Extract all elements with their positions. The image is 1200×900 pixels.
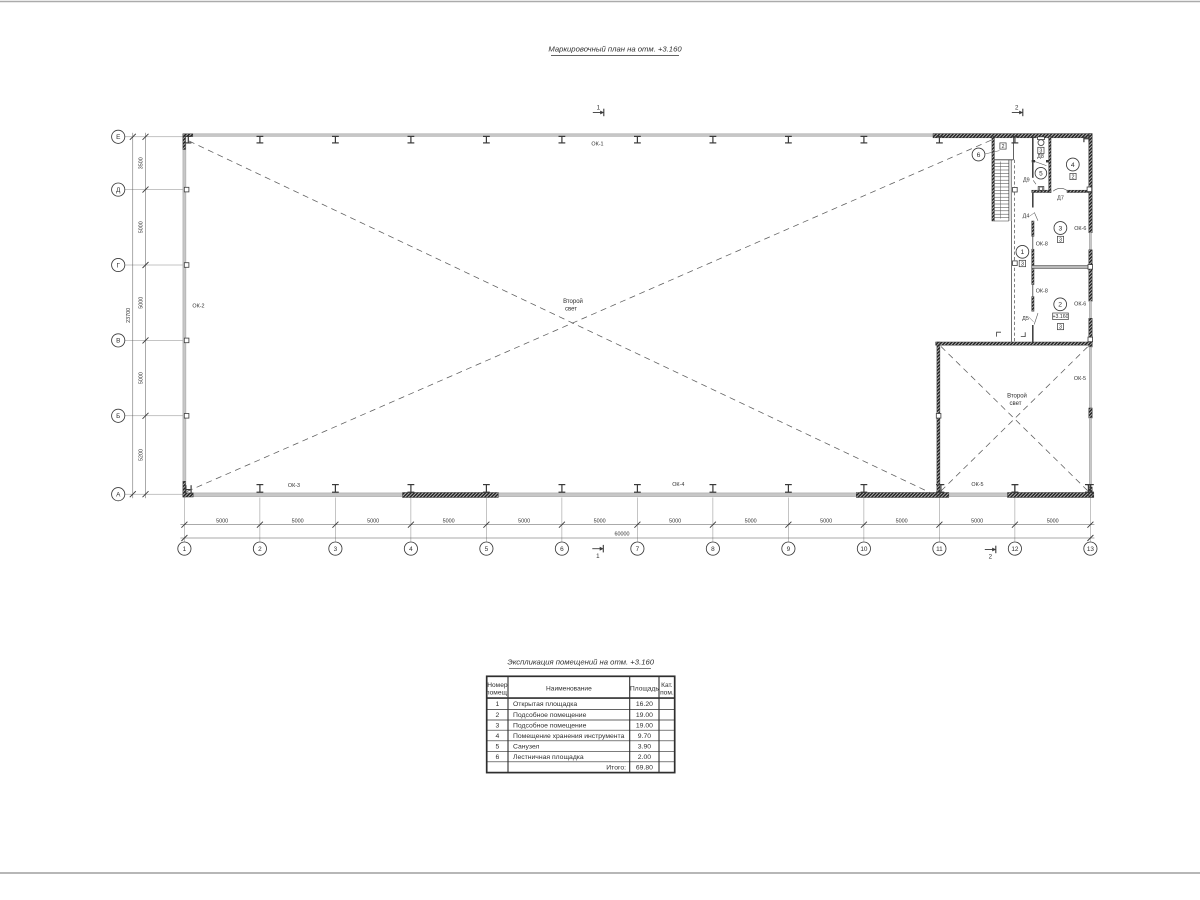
svg-text:9.70: 9.70 — [638, 733, 651, 740]
svg-text:Подсобное помещение: Подсобное помещение — [513, 722, 587, 730]
svg-text:5000: 5000 — [971, 518, 983, 524]
svg-text:свет: свет — [1009, 401, 1021, 407]
svg-text:5000: 5000 — [367, 518, 379, 524]
svg-text:23700: 23700 — [126, 308, 132, 323]
svg-text:12: 12 — [1011, 546, 1019, 553]
svg-text:Д8: Д8 — [1037, 154, 1044, 160]
svg-text:5000: 5000 — [669, 518, 681, 524]
svg-text:5000: 5000 — [1047, 518, 1059, 524]
svg-text:8: 8 — [711, 546, 715, 553]
svg-text:Второй: Второй — [1007, 393, 1027, 400]
svg-text:ОК-6: ОК-6 — [1074, 302, 1086, 308]
svg-text:Д7: Д7 — [1057, 196, 1064, 202]
svg-text:ОК-8: ОК-8 — [1036, 289, 1048, 295]
svg-text:ОК-8: ОК-8 — [1036, 242, 1048, 248]
svg-text:1: 1 — [596, 553, 600, 560]
svg-text:Помещение хранения инструмента: Помещение хранения инструмента — [513, 733, 625, 740]
svg-text:3: 3 — [334, 546, 338, 553]
svg-text:ОК-2: ОК-2 — [192, 304, 204, 310]
svg-text:Д: Д — [116, 187, 121, 194]
svg-text:ОК-6: ОК-6 — [1074, 226, 1086, 232]
svg-text:5200: 5200 — [139, 449, 145, 461]
svg-text:5: 5 — [496, 743, 500, 750]
svg-text:5000: 5000 — [745, 518, 757, 524]
svg-text:Лестничная площадка: Лестничная площадка — [513, 754, 584, 761]
svg-text:Маркировочный план на отм. +3.: Маркировочный план на отм. +3.160 — [548, 45, 682, 54]
svg-text:5000: 5000 — [518, 518, 530, 524]
svg-text:2: 2 — [989, 554, 993, 561]
svg-text:5000: 5000 — [139, 221, 145, 233]
svg-text:3: 3 — [1059, 325, 1062, 331]
svg-text:свет: свет — [565, 307, 577, 313]
svg-text:9: 9 — [787, 546, 791, 553]
svg-text:ОК-5: ОК-5 — [971, 482, 983, 488]
svg-text:5000: 5000 — [292, 518, 304, 524]
svg-text:7: 7 — [636, 546, 640, 553]
svg-text:Д5: Д5 — [1022, 316, 1029, 322]
svg-text:19.00: 19.00 — [636, 712, 653, 719]
svg-text:2: 2 — [258, 546, 262, 553]
svg-text:16.20: 16.20 — [636, 701, 653, 708]
svg-text:5000: 5000 — [820, 518, 832, 524]
svg-text:13: 13 — [1087, 546, 1095, 553]
svg-text:5000: 5000 — [139, 297, 145, 309]
svg-text:19.00: 19.00 — [636, 723, 653, 730]
svg-text:3: 3 — [1059, 225, 1063, 232]
svg-text:ОК-3: ОК-3 — [288, 483, 300, 489]
svg-text:6: 6 — [496, 754, 500, 761]
svg-text:В: В — [116, 338, 120, 345]
svg-text:69.80: 69.80 — [636, 765, 653, 772]
svg-text:11: 11 — [936, 546, 943, 553]
svg-text:6: 6 — [977, 152, 981, 159]
svg-text:6: 6 — [560, 546, 564, 553]
svg-text:5: 5 — [1039, 171, 1043, 178]
svg-text:2: 2 — [1072, 174, 1075, 180]
svg-text:3: 3 — [1059, 237, 1062, 243]
svg-text:5000: 5000 — [443, 518, 455, 524]
svg-text:2.00: 2.00 — [638, 754, 651, 761]
svg-text:ОК-1: ОК-1 — [591, 142, 603, 148]
svg-text:1: 1 — [496, 701, 500, 708]
svg-text:А: А — [116, 492, 121, 499]
svg-text:Кат.: Кат. — [661, 682, 673, 689]
svg-text:10: 10 — [860, 546, 868, 553]
svg-text:4: 4 — [409, 546, 413, 553]
svg-text:1: 1 — [1021, 249, 1025, 256]
svg-text:4: 4 — [1071, 162, 1075, 169]
svg-text:Е: Е — [116, 134, 120, 141]
svg-text:Открытая площадка: Открытая площадка — [513, 701, 577, 708]
svg-text:Д9: Д9 — [1023, 178, 1030, 184]
svg-text:5000: 5000 — [594, 518, 606, 524]
svg-text:60000: 60000 — [615, 532, 630, 538]
svg-text:1: 1 — [183, 546, 187, 553]
svg-text:пом.: пом. — [660, 689, 674, 696]
svg-text:Г: Г — [116, 262, 120, 269]
svg-text:2: 2 — [1002, 144, 1005, 150]
svg-text:ОК-5: ОК-5 — [1074, 376, 1086, 382]
svg-text:Наименование: Наименование — [546, 685, 592, 692]
svg-text:5: 5 — [485, 546, 489, 553]
svg-text:Второй: Второй — [563, 298, 583, 305]
svg-text:Экспликация помещений на отм.: Экспликация помещений на отм. +3.160 — [507, 657, 654, 666]
svg-text:Подсобное помещение: Подсобное помещение — [513, 711, 587, 719]
svg-text:Площадь: Площадь — [630, 685, 659, 692]
svg-text:3: 3 — [1021, 262, 1024, 268]
svg-text:5000: 5000 — [139, 372, 145, 384]
svg-text:+3.160: +3.160 — [1052, 314, 1068, 320]
svg-text:2: 2 — [1058, 302, 1062, 309]
svg-text:ОК-4: ОК-4 — [672, 482, 684, 488]
svg-text:Итого:: Итого: — [606, 765, 626, 772]
svg-text:2: 2 — [496, 712, 500, 719]
svg-text:3.90: 3.90 — [638, 743, 651, 750]
svg-text:Санузел: Санузел — [513, 743, 540, 750]
svg-text:помещ.: помещ. — [486, 689, 509, 696]
svg-text:3500: 3500 — [139, 157, 145, 169]
svg-text:2: 2 — [1015, 104, 1019, 111]
svg-text:5000: 5000 — [216, 518, 228, 524]
svg-text:Номер: Номер — [487, 682, 508, 689]
svg-text:Д4: Д4 — [1023, 214, 1030, 220]
svg-text:Б: Б — [116, 413, 120, 420]
svg-text:1: 1 — [597, 104, 601, 111]
svg-text:4: 4 — [496, 733, 500, 740]
svg-text:3: 3 — [496, 723, 500, 730]
svg-text:5000: 5000 — [896, 518, 908, 524]
